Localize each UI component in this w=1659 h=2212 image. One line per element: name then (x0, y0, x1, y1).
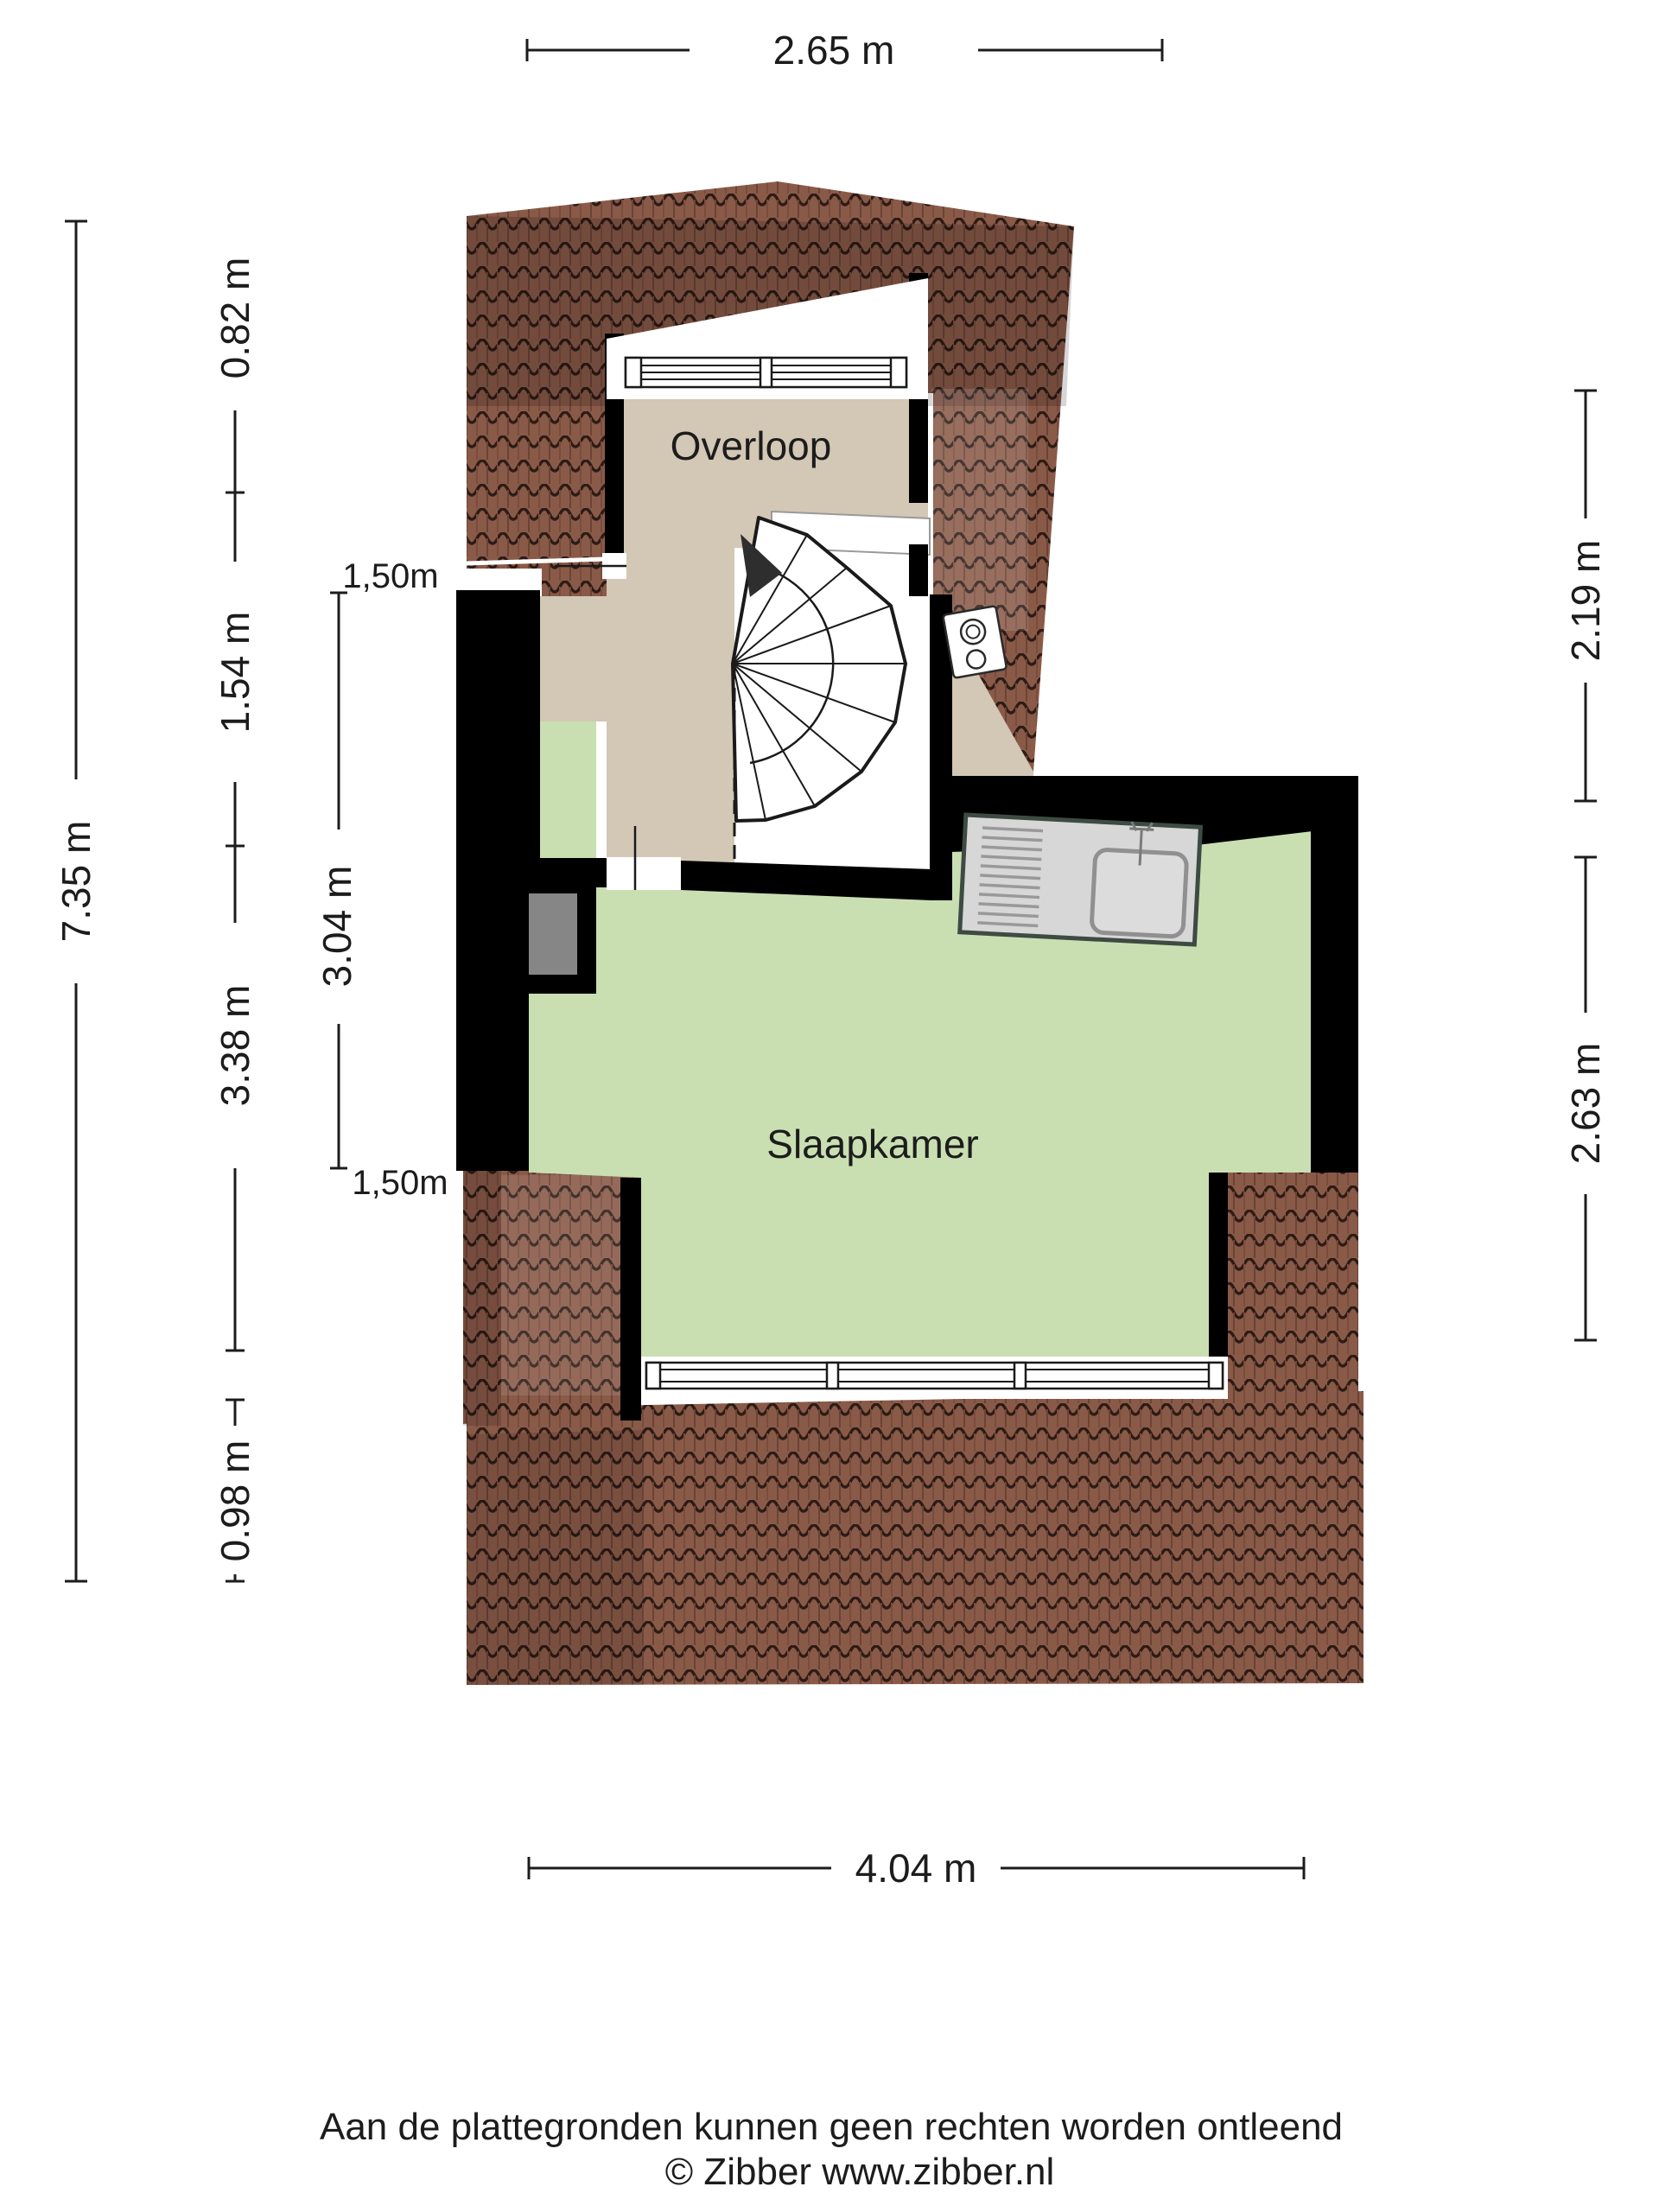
wall-overloop-right-lower (909, 544, 928, 596)
dimension-right-chain-1: 2.63 m (1563, 1043, 1608, 1165)
wall-bedroom-right-step (1209, 1173, 1228, 1370)
room-label-overloop: Overloop (671, 423, 832, 468)
dimension-bottom: 4.04 m (529, 1846, 1304, 1891)
radiator-body (529, 893, 577, 975)
dimension-left-chain-3: 0.98 m (213, 1440, 257, 1562)
headroom-bottom-label: 1,50m (352, 1164, 448, 1202)
window-slaapkamer (641, 1357, 1228, 1399)
roof-bottom-shade-dark2 (467, 1430, 644, 1685)
dimension-top-label: 2.65 m (773, 28, 895, 73)
floorplan-canvas: Overloop Slaapkamer 2.65 m 7.35 m 0.82 m… (0, 0, 1659, 2212)
boiler-unit (943, 606, 1007, 678)
window-bottom-frame (646, 1363, 1223, 1389)
floorplan-page: Overloop Slaapkamer 2.65 m 7.35 m 0.82 m… (0, 0, 1659, 2212)
kitchen-sink-unit (960, 813, 1201, 944)
dimension-left-chain-2: 3.38 m (213, 985, 257, 1107)
radiator (508, 873, 596, 994)
dimension-left-chain-1: 1.54 m (213, 612, 257, 734)
roof-bottom-shade-light (501, 1175, 622, 1395)
window-bottom-mullion-2 (1014, 1363, 1026, 1389)
window-bottom-mullion-1 (827, 1363, 838, 1389)
wall-bedroom-bottom-left (620, 1178, 641, 1421)
spiral-staircase (733, 512, 930, 869)
headroom-top-label: 1,50m (342, 557, 438, 595)
dimension-right-chain-0: 2.19 m (1563, 540, 1608, 662)
room-label-slaapkamer: Slaapkamer (766, 1122, 978, 1166)
headroom-span-label: 3.04 m (315, 866, 359, 988)
dimension-left-chain: 0.82 m 1.54 m 3.38 m 0.98 m (213, 257, 257, 1581)
roof-right-column-tiles (1228, 1173, 1358, 1396)
wall-bedroom-right (1311, 812, 1358, 1173)
footer-copyright: © Zibber www.zibber.nl (665, 2151, 1055, 2193)
dimension-left-chain-0: 0.82 m (213, 257, 257, 379)
window-top-mullion (760, 358, 772, 387)
dimension-top: 2.65 m (527, 28, 1162, 73)
dimension-headroom: 1,50m 3.04 m 1,50m (315, 557, 448, 1202)
door-opening-overloop-bedroom (607, 857, 681, 890)
dimension-right-chain: 2.19 m 2.63 m (1563, 391, 1608, 1340)
dimension-left-total-label: 7.35 m (54, 821, 99, 943)
footer-disclaimer: Aan de plattegronden kunnen geen rechten… (320, 2106, 1343, 2148)
dimension-left-total: 7.35 m (54, 221, 99, 1581)
dimension-bottom-label: 4.04 m (855, 1846, 977, 1891)
roof-bottom-shade-dark1 (463, 1171, 501, 1426)
